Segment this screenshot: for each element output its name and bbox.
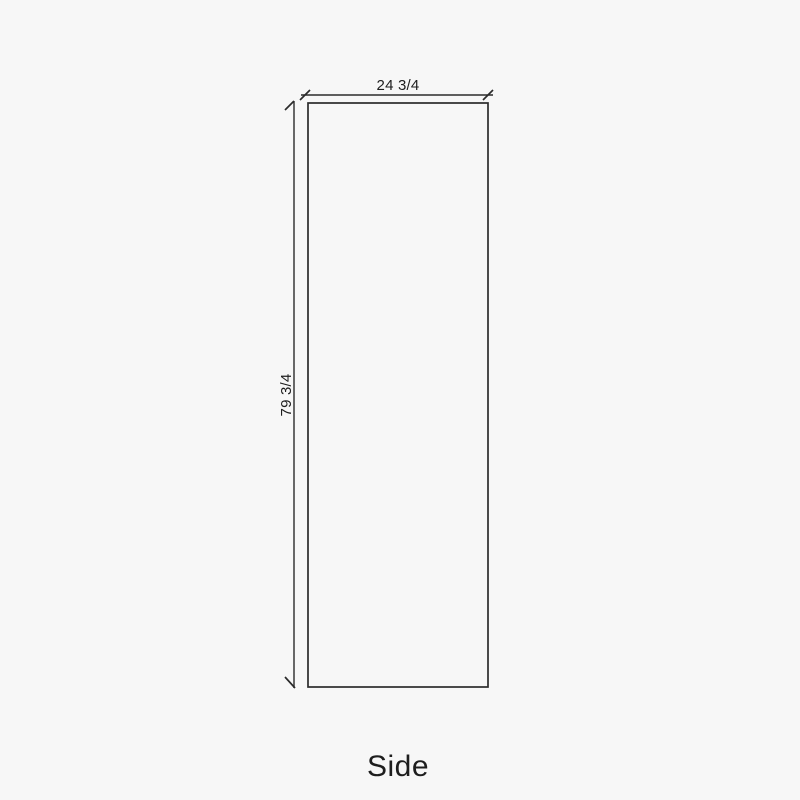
view-title: Side: [367, 750, 429, 783]
height-dimension-tick-top: [285, 101, 294, 110]
height-dimension: 79 3/4: [278, 101, 295, 688]
height-dimension-label: 79 3/4: [278, 374, 295, 417]
width-dimension: 24 3/4: [300, 77, 493, 100]
drawing-canvas: 24 3/4 79 3/4 Side: [0, 0, 800, 800]
panel-outline: [308, 103, 488, 687]
width-dimension-label: 24 3/4: [377, 77, 420, 94]
side-panel-drawing: 24 3/4 79 3/4 Side: [0, 0, 800, 800]
